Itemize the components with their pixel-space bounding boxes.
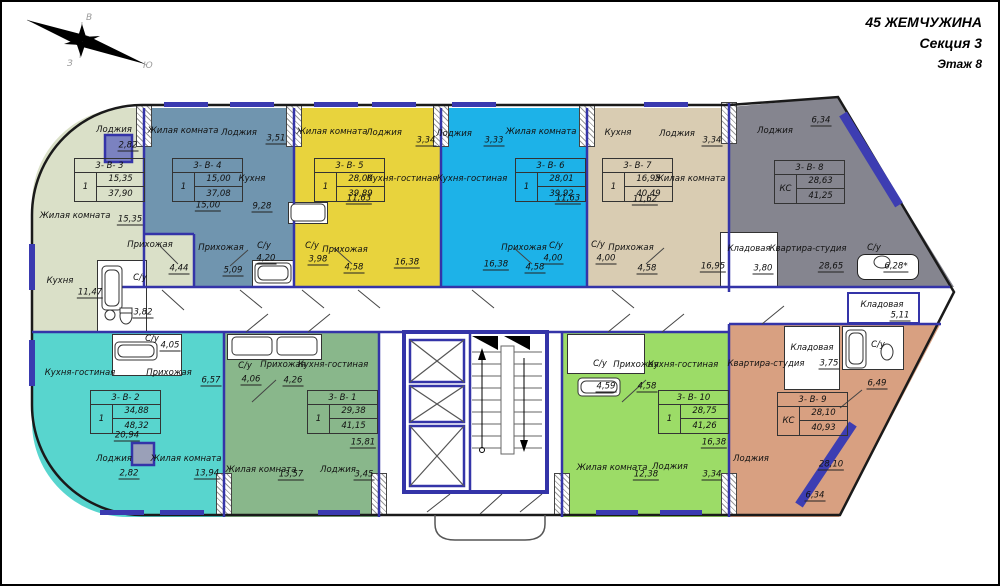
room-label: Прихожая xyxy=(501,243,547,253)
apartment-type: 1 xyxy=(659,405,681,433)
apartment-id: 3- В- 1 xyxy=(308,391,377,405)
apartment-type: КС xyxy=(775,175,797,203)
room-area: 4,58 xyxy=(637,264,658,275)
core-elevators-stairs xyxy=(404,332,547,492)
living-area: 28,75 xyxy=(681,405,728,419)
room-label: Кухня xyxy=(239,174,266,184)
room-label: Прихожая xyxy=(198,243,244,253)
apartment-table-3-v-2: 3- В- 2 1 34,88 48,32 xyxy=(90,390,161,434)
room-area: 4,00 xyxy=(596,254,617,265)
room-area: 4,58 xyxy=(344,263,365,274)
room-area: 4,06 xyxy=(241,375,262,386)
room-area: 3,75 xyxy=(819,359,840,370)
room-area: 16,38 xyxy=(394,258,420,269)
room-area: 3,82 xyxy=(133,308,154,319)
apartment-id: 3- В- 8 xyxy=(775,161,844,175)
total-area: 41,15 xyxy=(330,419,377,433)
room-area: 2,82 xyxy=(119,469,140,480)
room-area: 28,65 xyxy=(818,262,844,273)
room-label: Жилая комната xyxy=(148,126,219,136)
room-label: Жилая комната xyxy=(506,127,577,137)
room-label: Жилая комната xyxy=(297,127,368,137)
apartment-table-3-v-8: 3- В- 8 КС 28,63 41,25 xyxy=(774,160,845,204)
escape-balcony xyxy=(435,515,545,540)
room-area: 15,00 xyxy=(195,201,221,212)
room-label: Лоджия xyxy=(221,128,257,138)
apartment-table-3-v-1: 3- В- 1 1 29,38 41,15 xyxy=(307,390,378,434)
room-label: Лоджия xyxy=(366,128,402,138)
room-label: Прихожая xyxy=(146,368,192,378)
room-label: Кладовая xyxy=(727,244,770,254)
wall-hatch xyxy=(579,105,595,147)
room-area: 13,57 xyxy=(278,470,304,481)
room-area: 3,51 xyxy=(266,134,287,145)
apartment-type: 1 xyxy=(308,405,330,433)
room-area: 11,63 xyxy=(555,194,581,205)
room-label: С/у xyxy=(257,241,271,251)
room-label: Кухня-гостиная xyxy=(648,360,719,370)
room-label: Кладовая xyxy=(860,300,903,310)
apartment-id: 3- В- 3 xyxy=(75,159,144,173)
apartment-id: 3- В- 5 xyxy=(315,159,384,173)
room-area: 3,34 xyxy=(416,136,437,147)
wall-hatch xyxy=(554,473,570,515)
apartment-type: 1 xyxy=(603,173,625,201)
room-label: Лоджия xyxy=(652,462,688,472)
room-label: Квартира-студия xyxy=(770,244,847,254)
room-area: 11,47 xyxy=(77,288,103,299)
title-block: 45 ЖЕМЧУЖИНА Секция 3 Этаж 8 xyxy=(865,14,982,71)
room-area: 16,38 xyxy=(483,260,509,271)
room-area: 13,94 xyxy=(194,469,220,480)
floor-plan: 45 ЖЕМЧУЖИНА Секция 3 Этаж 8 xyxy=(0,0,1000,586)
room-label: С/у xyxy=(145,334,159,344)
room-area: 4,20 xyxy=(256,254,277,265)
wall-hatch xyxy=(286,105,302,147)
room-area: 15,81 xyxy=(350,438,376,449)
bathroom-3-v-3 xyxy=(97,260,147,332)
room-label: Лоджия xyxy=(757,126,793,136)
room-area: 3,34 xyxy=(702,136,723,147)
room-label: Квартира-студия xyxy=(728,359,805,369)
room-label: Лоджия xyxy=(659,129,695,139)
compass-west-letter: З xyxy=(67,59,73,69)
room-area: 3,34 xyxy=(702,470,723,481)
room-area: 16,38 xyxy=(701,438,727,449)
room-label: Кухня xyxy=(605,128,632,138)
room-label: Прихожая xyxy=(127,240,173,250)
apartment-id: 3- В- 2 xyxy=(91,391,160,405)
room-area: 6,34 xyxy=(805,491,826,502)
room-label: С/у xyxy=(871,340,885,350)
apartment-table-3-v-10: 3- В- 10 1 28,75 41,26 xyxy=(658,390,729,434)
room-area: 4,00 xyxy=(543,254,564,265)
total-area: 40,93 xyxy=(800,421,847,435)
room-area: 16,95 xyxy=(700,262,726,273)
room-area: 2,82 xyxy=(118,141,139,152)
room-area: 3,33 xyxy=(484,136,505,147)
room-label: С/у xyxy=(549,241,563,251)
room-label: Жилая комната xyxy=(151,454,222,464)
room-area: 4,44 xyxy=(169,264,190,275)
room-area: 3,45 xyxy=(354,470,375,481)
apartment-id: 3- В- 10 xyxy=(659,391,728,405)
room-label: С/у xyxy=(593,359,607,369)
room-area: 11,62 xyxy=(632,195,658,206)
apartment-id: 3- В- 7 xyxy=(603,159,672,173)
room-label: С/у xyxy=(305,241,319,251)
room-label: С/у xyxy=(238,361,252,371)
compass-rose: В З Ю xyxy=(27,13,153,71)
apartment-id: 3- В- 4 xyxy=(173,159,242,173)
room-label: Жилая комната xyxy=(40,211,111,221)
room-area: 3,98 xyxy=(308,255,329,266)
compass-east-letter: В xyxy=(86,13,92,23)
room-label: Лоджия xyxy=(320,465,356,475)
compass-south-letter: Ю xyxy=(143,61,153,71)
room-area: 4,05 xyxy=(160,341,181,352)
apartment-table-3-v-9: 3- В- 9 КС 28,10 40,93 xyxy=(777,392,848,436)
apartment-table-3-v-4: 3- В- 4 1 15,00 37,08 xyxy=(172,158,243,202)
room-area: 4,26 xyxy=(283,376,304,387)
bathroom-3-v-1 xyxy=(227,334,322,360)
room-label: Жилая комната xyxy=(655,174,726,184)
room-label: Кухня-гостиная xyxy=(45,368,116,378)
room-area: 4,59 xyxy=(596,382,617,393)
room-label: С/у xyxy=(133,273,147,283)
room-area: 6,34 xyxy=(811,116,832,127)
room-area: 6,57 xyxy=(201,376,222,387)
apartment-id: 3- В- 9 xyxy=(778,393,847,407)
living-area: 28,10 xyxy=(800,407,847,421)
total-area: 41,26 xyxy=(681,419,728,433)
room-area: 5,09 xyxy=(223,266,244,277)
living-area: 28,01 xyxy=(538,173,585,187)
total-area: 41,25 xyxy=(797,189,844,203)
apartment-type: 1 xyxy=(75,173,97,201)
room-area: 6,28* xyxy=(883,262,908,273)
floor-title: Этаж 8 xyxy=(865,57,982,71)
apartment-id: 3- В- 6 xyxy=(516,159,585,173)
room-label: Лоджия xyxy=(96,454,132,464)
project-title: 45 ЖЕМЧУЖИНА xyxy=(865,14,982,30)
room-label: Лоджия xyxy=(733,454,769,464)
room-label: Прихожая xyxy=(322,245,368,255)
apartment-table-3-v-3: 3- В- 3 1 15,35 37,90 xyxy=(74,158,145,202)
living-area: 34,88 xyxy=(113,405,160,419)
living-area: 28,63 xyxy=(797,175,844,189)
room-area: 3,80 xyxy=(753,264,774,275)
room-label: Кухня xyxy=(47,276,74,286)
room-label: Кухня-гостиная xyxy=(298,360,369,370)
room-area: 11,63 xyxy=(346,194,372,205)
wall-hatch xyxy=(721,473,737,515)
room-label: Лоджия xyxy=(96,125,132,135)
total-area: 37,90 xyxy=(97,187,144,201)
room-area: 5,11 xyxy=(890,311,911,322)
room-area: 4,58 xyxy=(637,382,658,393)
apartment-type: 1 xyxy=(516,173,538,201)
apartment-type: 1 xyxy=(173,173,195,201)
storage-3-v-8 xyxy=(720,232,778,288)
apartment-type: КС xyxy=(778,407,800,435)
apartment-type: 1 xyxy=(91,405,113,433)
room-label: Кухня-гостиная xyxy=(367,174,438,184)
living-area: 15,00 xyxy=(195,173,242,187)
room-area: 15,35 xyxy=(117,215,143,226)
room-label: С/у xyxy=(867,243,881,253)
room-label: Кладовая xyxy=(790,343,833,353)
room-area: 20,94 xyxy=(114,431,140,442)
total-area: 37,08 xyxy=(195,187,242,201)
room-label: Прихожая xyxy=(608,243,654,253)
room-area: 9,28 xyxy=(252,202,273,213)
room-area: 6,49 xyxy=(867,379,888,390)
room-area: 28,10 xyxy=(818,460,844,471)
living-area: 15,35 xyxy=(97,173,144,187)
room-label: Лоджия xyxy=(436,129,472,139)
room-label: С/у xyxy=(591,240,605,250)
section-title: Секция 3 xyxy=(865,35,982,51)
bathroom-3-v-5 xyxy=(288,202,328,224)
apartment-type: 1 xyxy=(315,173,337,201)
living-area: 29,38 xyxy=(330,405,377,419)
wall-hatch xyxy=(721,102,737,144)
room-label: Кухня-гостиная xyxy=(437,174,508,184)
